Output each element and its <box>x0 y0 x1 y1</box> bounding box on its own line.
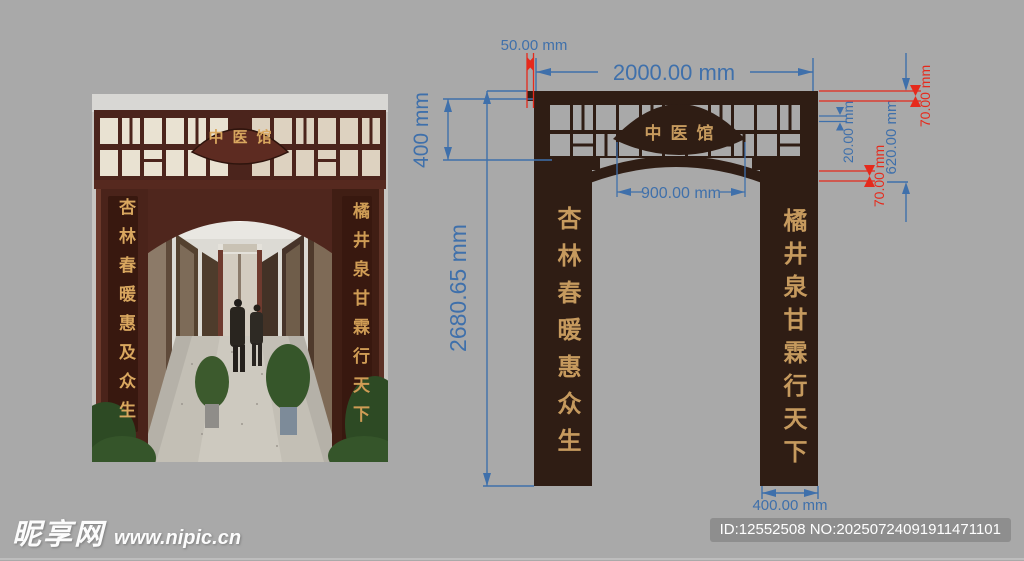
dim-label-sign-width: 900.00 mm <box>641 185 721 202</box>
arrowhead <box>902 78 910 91</box>
dim-label-header-height: 400 mm <box>410 92 433 168</box>
dim-label-column-height: 2680.65 mm <box>445 224 471 352</box>
arrowhead <box>483 473 491 486</box>
image-id-badge: ID:12552508 NO:20250724091911471101 <box>710 518 1011 542</box>
diagram-archway: 2000.00 mm 50.00 mm 400 mm 2680.65 mm 90… <box>0 0 1024 561</box>
dim-label-column-width: 400.00 mm <box>752 497 827 514</box>
diagram-couplet-left: 杏林春暖惠众生 <box>550 206 585 465</box>
dim-label-offset-top: 50.00 mm <box>501 37 568 54</box>
watermark: 昵享网 www.nipic.cn <box>12 511 241 553</box>
bottom-divider <box>0 558 1024 560</box>
canvas: 中医馆 杏林春暖惠及众生 橘井泉甘霖行天下 <box>0 0 1024 561</box>
arrowhead <box>617 188 631 196</box>
dim-beam-thickness <box>819 91 921 101</box>
arrowhead <box>536 68 551 76</box>
dim-label-beam: 70.00 mm <box>917 65 933 127</box>
dim-label-muntin: 20.00 mm <box>840 101 856 163</box>
arrowhead <box>731 188 745 196</box>
arrowhead <box>444 99 452 112</box>
arrowhead <box>798 68 813 76</box>
arrowhead <box>483 91 491 104</box>
diagram-couplet-right: 橘井泉甘霖行天下 <box>776 208 811 472</box>
dim-label-total-width: 2000.00 mm <box>613 60 735 85</box>
arrowhead <box>902 182 910 194</box>
diagram-sign-text: 中医馆 <box>629 119 729 144</box>
watermark-site-url: www.nipic.cn <box>114 527 241 550</box>
arrowhead <box>804 489 818 497</box>
dim-rail-thickness <box>819 171 875 181</box>
arrowhead <box>444 147 452 160</box>
beam <box>527 91 818 101</box>
watermark-site-name: 昵享网 <box>12 511 105 553</box>
arrowhead <box>762 489 776 497</box>
arch-rail <box>590 156 762 183</box>
dim-column-height <box>483 91 534 486</box>
dim-label-rail: 70.00 mm <box>871 145 887 207</box>
